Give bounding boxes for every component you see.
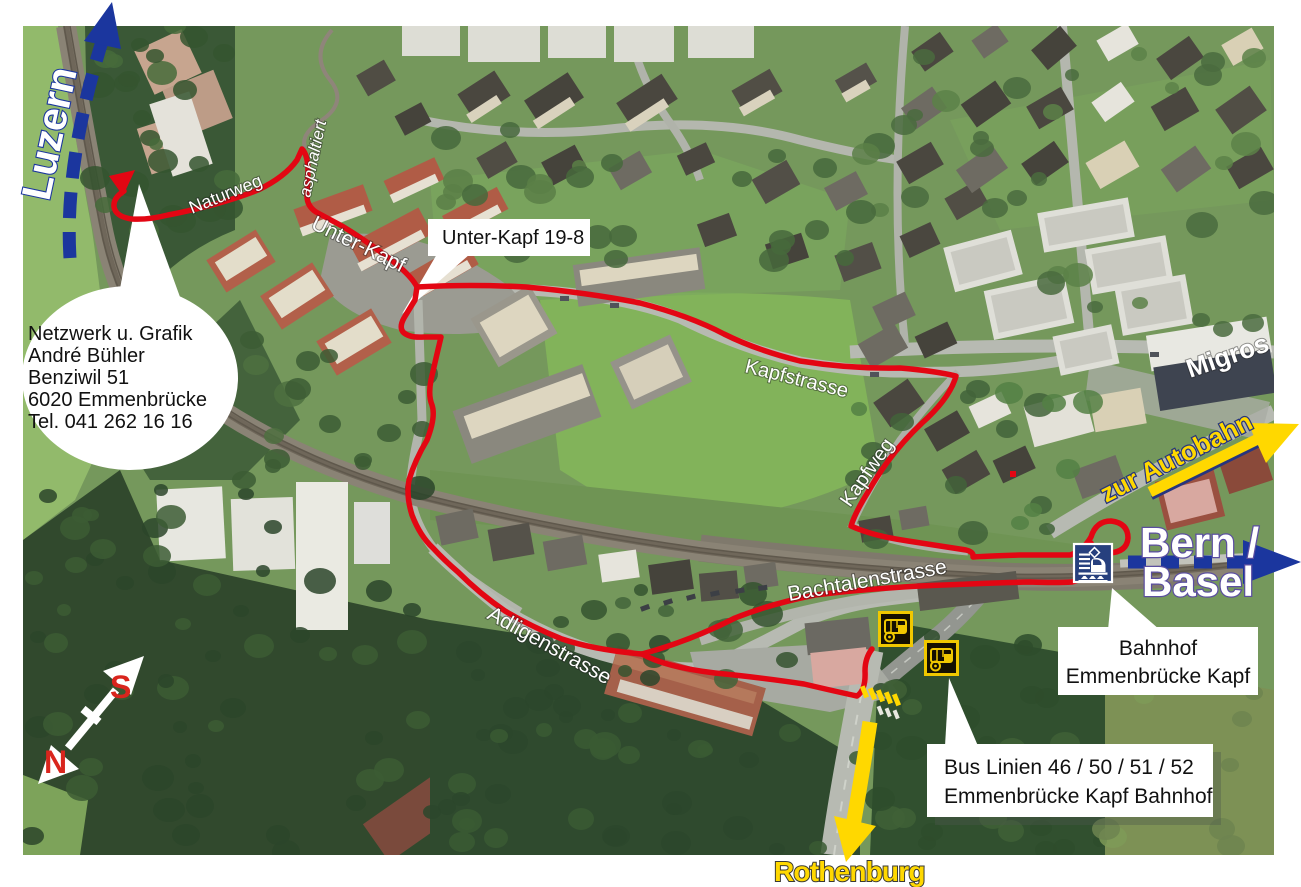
svg-text:Rothenburg: Rothenburg <box>774 856 925 887</box>
svg-text:Emmenbrücke Kapf Bahnhof: Emmenbrücke Kapf Bahnhof <box>944 785 1213 808</box>
svg-text:Bus Linien 46 / 50 / 51 / 52: Bus Linien 46 / 50 / 51 / 52 <box>944 756 1194 779</box>
svg-text:Basel: Basel <box>1142 558 1254 605</box>
svg-text:6020 Emmenbrücke: 6020 Emmenbrücke <box>28 389 207 411</box>
svg-text:Emmenbrücke Kapf: Emmenbrücke Kapf <box>1066 665 1251 688</box>
svg-text:André Bühler: André Bühler <box>28 345 145 367</box>
svg-text:Tel. 041 262 16 16: Tel. 041 262 16 16 <box>28 411 193 433</box>
svg-text:N: N <box>44 744 67 780</box>
svg-text:Netzwerk u. Grafik: Netzwerk u. Grafik <box>28 323 193 345</box>
svg-text:Bahnhof: Bahnhof <box>1119 637 1197 660</box>
svg-text:Unter-Kapf 19-8: Unter-Kapf 19-8 <box>442 227 584 249</box>
svg-text:S: S <box>110 669 131 705</box>
svg-text:Benziwil 51: Benziwil 51 <box>28 367 129 389</box>
